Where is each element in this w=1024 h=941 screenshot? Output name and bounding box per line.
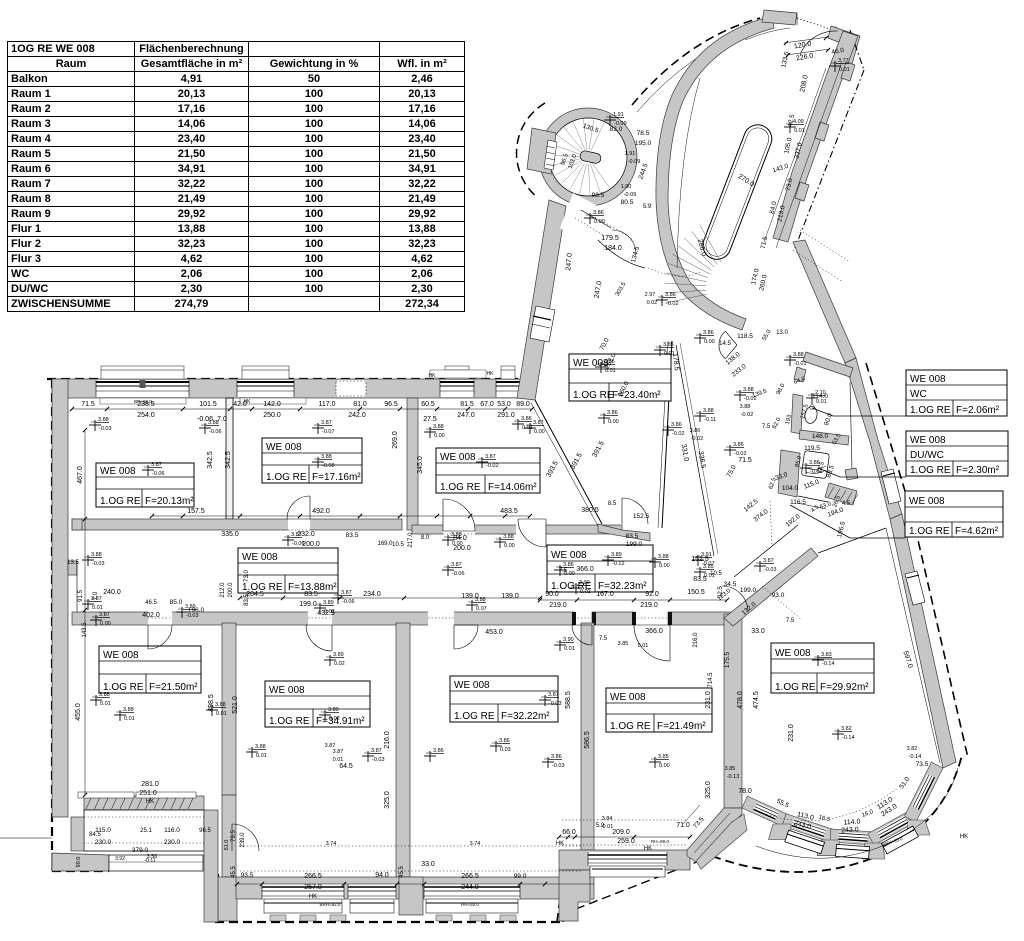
svg-text:HK: HK [146, 799, 154, 805]
svg-text:257.0: 257.0 [304, 884, 322, 891]
svg-text:3.84: 3.84 [602, 816, 613, 822]
svg-text:0.01: 0.01 [333, 757, 344, 763]
svg-text:0.00: 0.00 [452, 541, 463, 547]
svg-text:478.0: 478.0 [737, 691, 744, 709]
svg-text:-0.02: -0.02 [666, 301, 679, 307]
svg-text:281.0: 281.0 [141, 781, 159, 788]
svg-text:260.0: 260.0 [758, 274, 768, 292]
svg-text:142.0: 142.0 [263, 401, 281, 408]
svg-text:WE 008: WE 008 [909, 496, 945, 507]
svg-text:99.0: 99.0 [514, 873, 527, 880]
svg-text:-0.03: -0.03 [552, 763, 565, 769]
svg-text:0.02: 0.02 [647, 300, 658, 306]
svg-text:42.0: 42.0 [233, 401, 247, 408]
svg-text:HK: HK [487, 371, 495, 377]
svg-text:4.5: 4.5 [842, 501, 851, 507]
svg-text:120.0: 120.0 [793, 41, 812, 51]
svg-text:0.00: 0.00 [659, 763, 670, 769]
svg-text:62.0: 62.0 [772, 416, 783, 430]
svg-text:WE 008: WE 008 [103, 650, 139, 661]
svg-text:F=29.92m²: F=29.92m² [820, 682, 869, 693]
svg-text:2.10: 2.10 [815, 390, 826, 396]
svg-text:195.0: 195.0 [635, 140, 652, 147]
svg-text:4.09: 4.09 [793, 119, 804, 125]
svg-text:1.90: 1.90 [621, 184, 632, 190]
svg-text:247.0: 247.0 [565, 253, 574, 271]
svg-text:303.5: 303.5 [615, 281, 628, 298]
svg-text:-0.13: -0.13 [727, 774, 740, 780]
svg-text:WE 008: WE 008 [775, 648, 811, 659]
svg-text:-0.14: -0.14 [842, 735, 855, 741]
svg-text:117.0: 117.0 [319, 401, 336, 408]
svg-text:16.0: 16.0 [861, 809, 875, 819]
svg-text:0.01: 0.01 [92, 605, 103, 611]
svg-text:0.00: 0.00 [434, 433, 445, 439]
svg-text:0.00: 0.00 [704, 339, 715, 345]
svg-text:286.0: 286.0 [696, 238, 707, 257]
svg-text:325.0: 325.0 [705, 781, 712, 799]
svg-text:-0.12: -0.12 [612, 561, 625, 567]
svg-text:-0.06: -0.06 [292, 541, 305, 547]
svg-text:33.0: 33.0 [751, 628, 765, 635]
svg-text:266.5: 266.5 [461, 873, 479, 880]
svg-text:366.0: 366.0 [645, 628, 663, 635]
svg-text:73.5: 73.5 [916, 761, 929, 768]
svg-text:F=14.06m²: F=14.06m² [488, 482, 537, 493]
svg-text:3.88: 3.88 [503, 534, 514, 540]
svg-text:455.0: 455.0 [75, 703, 82, 721]
svg-text:34.5: 34.5 [724, 581, 737, 588]
svg-text:71.5: 71.5 [738, 457, 752, 464]
svg-text:1.91: 1.91 [613, 112, 624, 118]
svg-text:247.0: 247.0 [457, 412, 475, 419]
svg-text:250.0: 250.0 [263, 412, 281, 419]
svg-text:342.5: 342.5 [207, 451, 214, 469]
svg-text:3.86: 3.86 [499, 738, 510, 744]
svg-text:3.87: 3.87 [333, 749, 344, 755]
svg-text:93.5: 93.5 [241, 872, 254, 879]
svg-text:63.0: 63.0 [819, 501, 833, 511]
svg-text:WE 008: WE 008 [610, 692, 646, 703]
svg-text:-0.02: -0.02 [744, 396, 757, 402]
svg-text:325.0: 325.0 [384, 791, 391, 809]
svg-text:3.88: 3.88 [475, 597, 486, 603]
svg-text:25.1: 25.1 [140, 828, 152, 834]
svg-text:0.01: 0.01 [522, 425, 533, 431]
svg-text:5.9: 5.9 [643, 204, 652, 210]
svg-text:7.5: 7.5 [762, 424, 771, 430]
svg-text:1.OG RE: 1.OG RE [910, 465, 951, 476]
svg-text:219.0: 219.0 [549, 602, 567, 609]
svg-text:0.02: 0.02 [324, 609, 335, 615]
svg-text:0.01: 0.01 [564, 646, 575, 652]
svg-text:RH=89.0: RH=89.0 [651, 839, 669, 844]
svg-text:1.OG RE: 1.OG RE [100, 496, 141, 507]
svg-text:3.82: 3.82 [841, 726, 852, 732]
svg-text:244.0: 244.0 [461, 884, 479, 891]
svg-text:714.5: 714.5 [708, 672, 714, 688]
svg-text:46.5: 46.5 [145, 600, 157, 606]
svg-text:3.90: 3.90 [579, 580, 590, 586]
svg-text:98.0: 98.0 [776, 382, 787, 396]
svg-text:393.5: 393.5 [545, 460, 559, 479]
svg-text:143.5: 143.5 [82, 622, 88, 638]
svg-text:134.5: 134.5 [630, 245, 641, 263]
svg-text:0.00: 0.00 [534, 429, 545, 435]
svg-text:1.OG RE: 1.OG RE [573, 390, 614, 401]
svg-text:0.01: 0.01 [638, 643, 649, 649]
svg-text:F=34.91m²: F=34.91m² [316, 716, 365, 727]
svg-text:238.5: 238.5 [137, 401, 155, 408]
svg-text:-0.02: -0.02 [734, 451, 747, 457]
svg-text:226.0: 226.0 [795, 53, 814, 63]
svg-text:60.5: 60.5 [421, 401, 435, 408]
svg-text:3.88: 3.88 [740, 404, 751, 410]
svg-text:F=2.30m²: F=2.30m² [956, 465, 1000, 476]
svg-text:216.0: 216.0 [384, 731, 391, 749]
svg-text:259.0: 259.0 [617, 838, 635, 845]
svg-text:3.88: 3.88 [703, 408, 714, 414]
svg-text:WE 008: WE 008 [242, 552, 278, 563]
svg-text:157.5: 157.5 [187, 508, 205, 515]
svg-text:291.0: 291.0 [497, 412, 515, 419]
svg-text:492.0: 492.0 [312, 508, 330, 515]
svg-text:0.01: 0.01 [100, 701, 111, 707]
svg-text:93.0: 93.0 [772, 592, 785, 599]
svg-text:81.5: 81.5 [460, 401, 474, 408]
svg-text:90.0: 90.0 [545, 591, 559, 598]
svg-text:200.0: 200.0 [228, 582, 234, 598]
svg-text:219.0: 219.0 [640, 602, 658, 609]
svg-text:3.86: 3.86 [809, 460, 820, 466]
svg-text:270.0: 270.0 [737, 173, 756, 188]
svg-text:0.01: 0.01 [216, 711, 227, 717]
svg-text:-0.06: -0.06 [209, 429, 222, 435]
svg-text:192.0: 192.0 [785, 513, 802, 529]
svg-text:247.0: 247.0 [594, 280, 604, 299]
svg-text:71.0: 71.0 [676, 822, 690, 829]
svg-text:-0.09: -0.09 [628, 159, 641, 165]
svg-text:230.0: 230.0 [164, 839, 181, 846]
svg-text:83.5: 83.5 [346, 532, 359, 539]
svg-text:139.0: 139.0 [501, 593, 519, 600]
svg-text:13.5: 13.5 [67, 560, 79, 566]
svg-text:75.0: 75.0 [726, 464, 738, 479]
svg-text:3.88: 3.88 [658, 554, 669, 560]
svg-text:2.97: 2.97 [645, 292, 656, 298]
svg-text:-0.07: -0.07 [702, 561, 715, 567]
svg-text:0.02: 0.02 [334, 661, 345, 667]
svg-text:83.5: 83.5 [244, 594, 250, 606]
svg-text:3.87: 3.87 [341, 590, 352, 596]
svg-text:199.0: 199.0 [299, 601, 317, 608]
svg-text:3.87: 3.87 [151, 462, 162, 468]
svg-text:83.0: 83.0 [610, 126, 623, 133]
svg-text:1.OG RE: 1.OG RE [440, 482, 481, 493]
svg-text:WE 008: WE 008 [910, 374, 946, 385]
svg-text:374.0: 374.0 [753, 508, 770, 524]
svg-text:-0.09: -0.09 [614, 121, 627, 127]
svg-text:240.0: 240.0 [103, 589, 121, 596]
svg-text:HK: HK [960, 834, 968, 840]
svg-text:HK: HK [556, 841, 564, 847]
svg-text:1.OG RE: 1.OG RE [910, 405, 951, 416]
svg-text:216.0: 216.0 [693, 632, 699, 648]
svg-text:-0.14: -0.14 [909, 754, 922, 760]
svg-text:8.5: 8.5 [608, 501, 617, 507]
svg-text:467.0: 467.0 [77, 466, 84, 484]
svg-text:3.87: 3.87 [451, 562, 462, 568]
svg-text:94.0: 94.0 [375, 872, 389, 879]
svg-text:-0.06: -0.06 [152, 471, 165, 477]
svg-text:WC: WC [910, 389, 927, 400]
svg-text:BRH=92.0: BRH=92.0 [320, 902, 341, 907]
svg-text:-0.02: -0.02 [486, 463, 499, 469]
svg-text:45.5: 45.5 [231, 866, 237, 878]
svg-text:92.0: 92.0 [645, 591, 659, 598]
svg-text:-0.06: -0.06 [342, 599, 355, 605]
svg-text:F=32.22m²: F=32.22m² [501, 711, 550, 722]
svg-text:3.89: 3.89 [185, 604, 196, 610]
svg-text:116.0: 116.0 [164, 827, 180, 834]
svg-text:199.0: 199.0 [626, 541, 643, 548]
svg-text:84.0: 84.0 [769, 200, 779, 214]
svg-text:3.87: 3.87 [763, 558, 774, 564]
svg-text:-0.03: -0.03 [372, 757, 385, 763]
svg-text:231.0: 231.0 [788, 724, 795, 742]
svg-text:209.0: 209.0 [612, 829, 630, 836]
svg-text:266.5: 266.5 [304, 873, 322, 880]
svg-text:199.0: 199.0 [740, 587, 757, 594]
svg-text:-0.03: -0.03 [92, 561, 105, 567]
svg-text:99.0: 99.0 [76, 857, 82, 868]
svg-text:RH=92.0: RH=92.0 [461, 902, 479, 907]
svg-text:F=17.16m²: F=17.16m² [312, 472, 361, 483]
svg-text:380.5: 380.5 [581, 507, 599, 514]
svg-text:586.5: 586.5 [584, 731, 591, 749]
svg-text:F=2.06m²: F=2.06m² [956, 405, 1000, 416]
svg-text:3.86: 3.86 [551, 754, 562, 760]
svg-text:0.03: 0.03 [500, 747, 511, 753]
svg-text:-0.08: -0.08 [322, 463, 335, 469]
svg-text:0.01: 0.01 [794, 128, 805, 134]
svg-text:81.0: 81.0 [353, 401, 367, 408]
svg-text:101.5: 101.5 [199, 401, 217, 408]
svg-text:231.0: 231.0 [705, 691, 712, 709]
svg-text:3.86: 3.86 [607, 410, 618, 416]
svg-text:3.88: 3.88 [208, 420, 219, 426]
svg-text:HK: HK [644, 846, 652, 852]
svg-text:251.0: 251.0 [139, 790, 157, 797]
svg-text:588.5: 588.5 [565, 691, 572, 709]
svg-text:3.87: 3.87 [533, 420, 544, 426]
svg-text:WE 008: WE 008 [551, 550, 587, 561]
svg-text:-0.09: -0.09 [624, 192, 637, 198]
svg-text:WE 008: WE 008 [454, 680, 490, 691]
svg-text:0.00: 0.00 [100, 621, 111, 627]
svg-text:3.90: 3.90 [563, 637, 574, 643]
svg-text:0.07: 0.07 [476, 606, 487, 612]
svg-text:DU/WC: DU/WC [910, 450, 944, 461]
svg-text:96.5: 96.5 [384, 401, 398, 408]
svg-text:7.5: 7.5 [599, 636, 608, 642]
svg-text:335.0: 335.0 [221, 531, 239, 538]
svg-text:51.0: 51.0 [898, 776, 911, 791]
svg-text:3.88: 3.88 [433, 424, 444, 430]
svg-text:331.0: 331.0 [680, 443, 690, 462]
svg-text:230.0: 230.0 [95, 839, 112, 846]
svg-text:-0.02: -0.02 [691, 436, 704, 442]
svg-text:3.86: 3.86 [690, 428, 701, 434]
svg-text:3.87: 3.87 [485, 454, 496, 460]
svg-text:119.5: 119.5 [804, 445, 820, 452]
svg-text:3.86: 3.86 [593, 210, 604, 216]
svg-text:3.85: 3.85 [618, 641, 629, 647]
svg-text:3.86: 3.86 [521, 416, 532, 422]
svg-text:96.5: 96.5 [199, 828, 211, 834]
svg-text:200.0: 200.0 [302, 541, 320, 548]
svg-text:1.OG RE: 1.OG RE [266, 472, 307, 483]
svg-text:0.02: 0.02 [329, 716, 340, 722]
svg-text:152.5: 152.5 [633, 513, 650, 520]
svg-text:73.5: 73.5 [692, 816, 706, 830]
svg-text:73.0: 73.0 [244, 570, 250, 582]
svg-text:118.5: 118.5 [737, 333, 753, 340]
svg-text:521.0: 521.0 [232, 696, 239, 714]
svg-text:3.83: 3.83 [821, 652, 832, 658]
svg-text:98.5: 98.5 [592, 192, 605, 199]
svg-text:HK: HK [309, 894, 317, 900]
svg-text:179.5: 179.5 [601, 235, 619, 242]
svg-text:-0.03: -0.03 [186, 613, 199, 619]
svg-text:3.89: 3.89 [323, 600, 334, 606]
svg-text:0.01: 0.01 [664, 351, 675, 357]
svg-text:597.0: 597.0 [901, 650, 913, 669]
svg-text:66.0: 66.0 [562, 829, 576, 836]
svg-text:104.0: 104.0 [782, 485, 799, 492]
svg-text:3.85: 3.85 [725, 766, 736, 772]
svg-text:3.89: 3.89 [333, 652, 344, 658]
svg-text:269.0: 269.0 [392, 431, 399, 449]
svg-text:3.86: 3.86 [733, 442, 744, 448]
svg-text:10.5: 10.5 [392, 542, 404, 548]
svg-text:0.01: 0.01 [839, 67, 850, 73]
svg-text:1.OG RE: 1.OG RE [909, 526, 950, 537]
svg-text:F=4.62m²: F=4.62m² [955, 526, 999, 537]
svg-text:345.0: 345.0 [417, 456, 424, 474]
svg-text:3.82: 3.82 [907, 746, 918, 752]
svg-text:61.0: 61.0 [224, 840, 230, 851]
svg-text:3.88: 3.88 [123, 707, 134, 713]
svg-text:45.5: 45.5 [399, 866, 405, 878]
svg-text:234.0: 234.0 [363, 591, 381, 598]
svg-text:1.OG RE: 1.OG RE [775, 682, 816, 693]
svg-text:71.5: 71.5 [81, 401, 95, 408]
svg-text:1.91: 1.91 [625, 151, 636, 157]
svg-text:78.5: 78.5 [637, 130, 650, 137]
svg-text:1.OG RE: 1.OG RE [454, 711, 495, 722]
svg-text:3.87: 3.87 [548, 692, 559, 698]
svg-text:212.0: 212.0 [220, 582, 226, 598]
svg-text:3.87: 3.87 [371, 748, 382, 754]
svg-text:142.5: 142.5 [743, 498, 760, 514]
svg-text:233.0: 233.0 [731, 363, 748, 379]
svg-text:14.5: 14.5 [719, 341, 731, 347]
svg-text:3.87: 3.87 [291, 532, 302, 538]
svg-text:243.0: 243.0 [841, 827, 859, 835]
svg-text:3.87: 3.87 [321, 420, 332, 426]
svg-text:27.5: 27.5 [423, 416, 437, 423]
svg-text:WE 008: WE 008 [266, 442, 302, 453]
svg-text:3.88: 3.88 [255, 744, 266, 750]
svg-text:55.0: 55.0 [762, 328, 773, 342]
svg-text:115.0: 115.0 [803, 478, 821, 490]
svg-text:-0.03: -0.03 [99, 426, 112, 432]
svg-text:194.0: 194.0 [827, 506, 845, 518]
svg-text:474.5: 474.5 [753, 691, 760, 709]
svg-text:80.5: 80.5 [621, 199, 634, 206]
svg-text:-0.01: -0.01 [794, 361, 807, 367]
svg-text:483.5: 483.5 [500, 508, 518, 515]
svg-text:7.5: 7.5 [786, 618, 795, 624]
svg-text:13.0: 13.0 [776, 330, 788, 336]
svg-text:WE 008: WE 008 [910, 435, 946, 446]
svg-text:53.0: 53.0 [497, 401, 511, 408]
svg-text:1.OG RE: 1.OG RE [269, 716, 310, 727]
svg-text:0.01: 0.01 [605, 368, 616, 374]
svg-text:3.87: 3.87 [99, 612, 110, 618]
svg-text:-0.02: -0.02 [672, 431, 685, 437]
svg-text:3.92: 3.92 [115, 856, 125, 862]
svg-text:0.01: 0.01 [704, 573, 715, 579]
svg-text:3.87: 3.87 [325, 743, 336, 749]
svg-text:3.77: 3.77 [838, 58, 849, 64]
svg-text:0.02: 0.02 [580, 589, 591, 595]
svg-text:3.88: 3.88 [321, 454, 332, 460]
svg-text:366.0: 366.0 [576, 566, 594, 573]
svg-text:83.5: 83.5 [626, 533, 639, 540]
svg-text:91.5: 91.5 [78, 590, 84, 602]
svg-text:217.0: 217.0 [408, 532, 414, 548]
svg-text:3.86: 3.86 [703, 330, 714, 336]
svg-text:3.89: 3.89 [328, 707, 339, 713]
svg-text:90.0: 90.0 [823, 412, 834, 427]
svg-text:3.88: 3.88 [98, 417, 109, 423]
svg-text:3.86: 3.86 [665, 292, 676, 298]
svg-text:391.5: 391.5 [569, 452, 583, 471]
svg-text:3.91: 3.91 [701, 552, 712, 558]
svg-text:3.88: 3.88 [91, 552, 102, 558]
svg-text:55.5: 55.5 [775, 798, 790, 810]
svg-text:83.5: 83.5 [304, 591, 318, 598]
svg-text:184.0: 184.0 [604, 245, 622, 252]
svg-text:16.5: 16.5 [818, 815, 831, 824]
svg-text:0.00: 0.00 [504, 543, 515, 549]
svg-text:453.0: 453.0 [485, 629, 503, 636]
svg-text:3.86: 3.86 [604, 359, 615, 365]
svg-text:3.85: 3.85 [663, 342, 674, 348]
svg-text:-0.06: -0.06 [452, 571, 465, 577]
svg-text:254.0: 254.0 [137, 412, 155, 419]
svg-text:8.0: 8.0 [421, 535, 430, 541]
svg-text:143.0: 143.0 [772, 163, 790, 175]
svg-text:64.5: 64.5 [339, 763, 353, 770]
svg-text:3.86: 3.86 [671, 422, 682, 428]
svg-text:0.00: 0.00 [564, 571, 575, 577]
svg-text:1.OG RE: 1.OG RE [610, 721, 651, 732]
svg-text:148.0: 148.0 [812, 433, 829, 440]
svg-text:WE 008: WE 008 [440, 452, 476, 463]
